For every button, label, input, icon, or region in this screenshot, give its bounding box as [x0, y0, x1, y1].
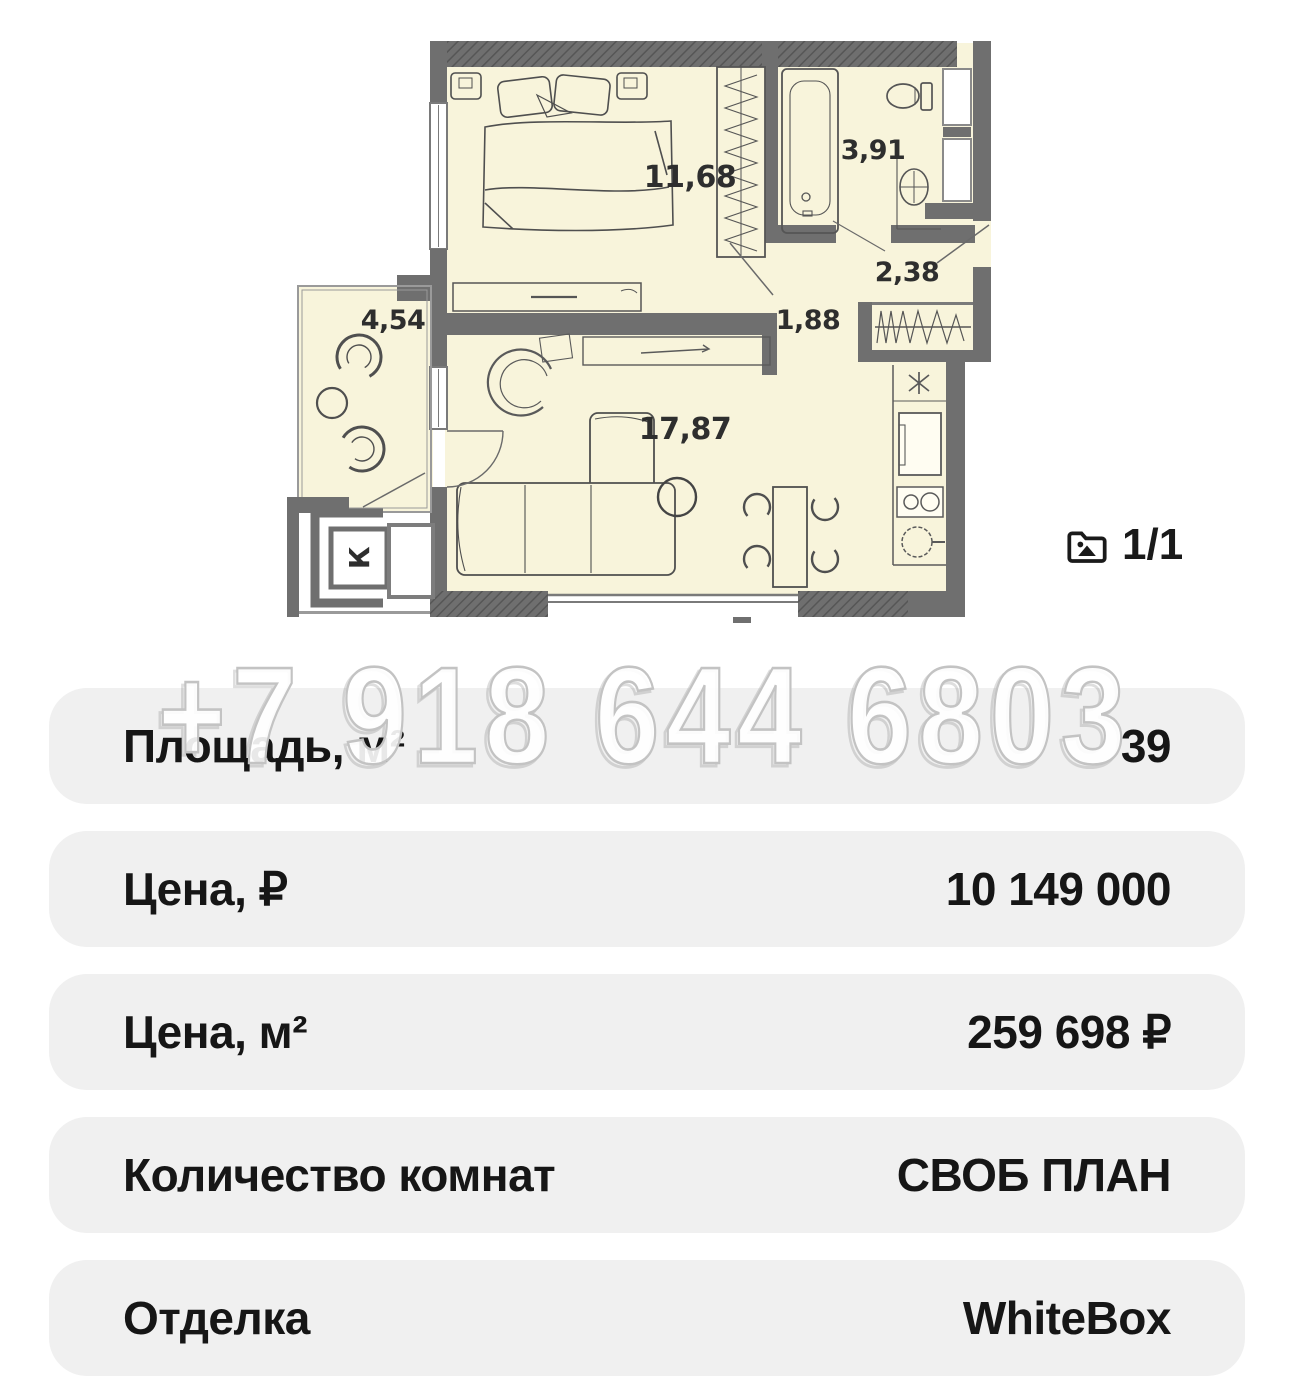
room-area-label-corridor: 1,88: [776, 305, 841, 336]
room-area-label-bedroom: 11,68: [644, 160, 736, 195]
detail-row-price-per-m2: Цена, м² 259 698 ₽: [49, 974, 1245, 1090]
dresser-icon: [453, 283, 641, 311]
detail-label: Цена, ₽: [123, 862, 287, 916]
detail-value: СВОБ ПЛАН: [897, 1148, 1171, 1202]
detail-row-rooms: Количество комнат СВОБ ПЛАН: [49, 1117, 1245, 1233]
detail-label: Площадь, м²: [123, 719, 405, 773]
shaft-label: К: [343, 546, 376, 569]
gallery-counter-label: 1/1: [1122, 520, 1183, 570]
detail-value: 10 149 000: [946, 862, 1171, 916]
detail-row-price: Цена, ₽ 10 149 000: [49, 831, 1245, 947]
detail-label: Цена, м²: [123, 1005, 307, 1059]
detail-value: WhiteBox: [963, 1291, 1171, 1345]
floor-plan-image[interactable]: К 11,68: [285, 35, 995, 625]
room-area-label-bathroom: 3,91: [841, 135, 906, 166]
detail-row-finishing: Отделка WhiteBox: [49, 1260, 1245, 1376]
detail-value: 39: [1121, 719, 1171, 773]
detail-label: Отделка: [123, 1291, 310, 1345]
detail-label: Количество комнат: [123, 1148, 555, 1202]
room-area-label-hall: 2,38: [875, 257, 940, 288]
listing-page: К 11,68: [0, 0, 1290, 1377]
detail-value: 259 698 ₽: [967, 1005, 1171, 1059]
gallery-counter[interactable]: 1/1: [1066, 520, 1183, 570]
utility-shaft: К: [287, 497, 433, 617]
room-area-label-balcony: 4,54: [361, 305, 426, 336]
photos-icon: [1066, 526, 1108, 564]
room-area-label-living: 17,87: [639, 412, 731, 447]
detail-row-area: Площадь, м² 39: [49, 688, 1245, 804]
